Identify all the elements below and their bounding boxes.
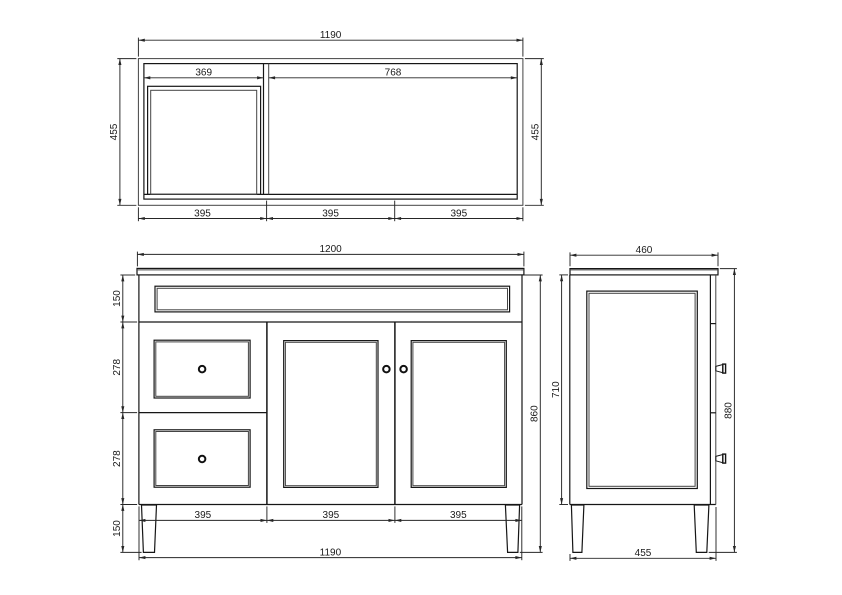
- svg-text:768: 768: [385, 68, 402, 79]
- svg-text:395: 395: [450, 510, 467, 521]
- svg-text:369: 369: [195, 68, 212, 79]
- svg-text:278: 278: [112, 359, 123, 376]
- svg-text:860: 860: [530, 405, 541, 422]
- svg-text:455: 455: [635, 548, 652, 559]
- svg-text:150: 150: [112, 520, 123, 537]
- svg-text:395: 395: [322, 208, 339, 219]
- svg-text:395: 395: [450, 208, 467, 219]
- svg-text:1200: 1200: [319, 244, 342, 255]
- svg-text:395: 395: [194, 208, 211, 219]
- svg-text:455: 455: [531, 123, 542, 140]
- svg-text:1190: 1190: [320, 547, 342, 558]
- svg-text:455: 455: [109, 123, 120, 140]
- svg-text:710: 710: [551, 381, 562, 398]
- svg-text:880: 880: [724, 402, 735, 419]
- svg-text:395: 395: [323, 510, 340, 521]
- svg-text:395: 395: [195, 510, 212, 521]
- svg-text:278: 278: [112, 450, 123, 467]
- svg-text:460: 460: [636, 245, 653, 256]
- svg-text:150: 150: [112, 290, 123, 307]
- svg-text:1190: 1190: [320, 30, 342, 41]
